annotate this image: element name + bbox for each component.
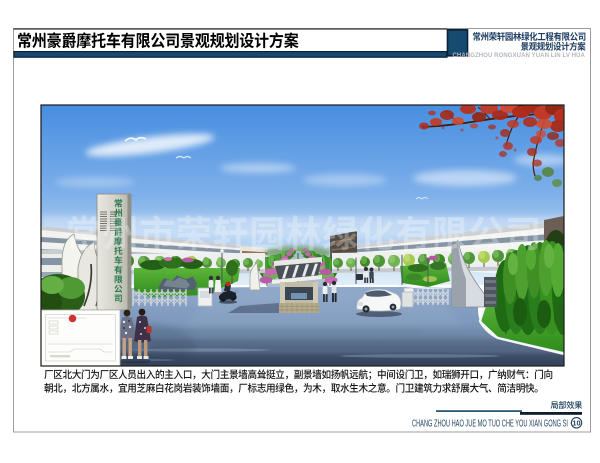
svg-text:CHANGZHOU RONGXUAN YUAN LIN LV: CHANGZHOU RONGXUAN YUAN LIN LV HUA	[452, 53, 585, 59]
svg-text:10: 10	[572, 419, 580, 428]
svg-text:CHANG ZHOU HAO JUE MO TUO CHE: CHANG ZHOU HAO JUE MO TUO CHE YOU XIAN G…	[412, 419, 568, 430]
